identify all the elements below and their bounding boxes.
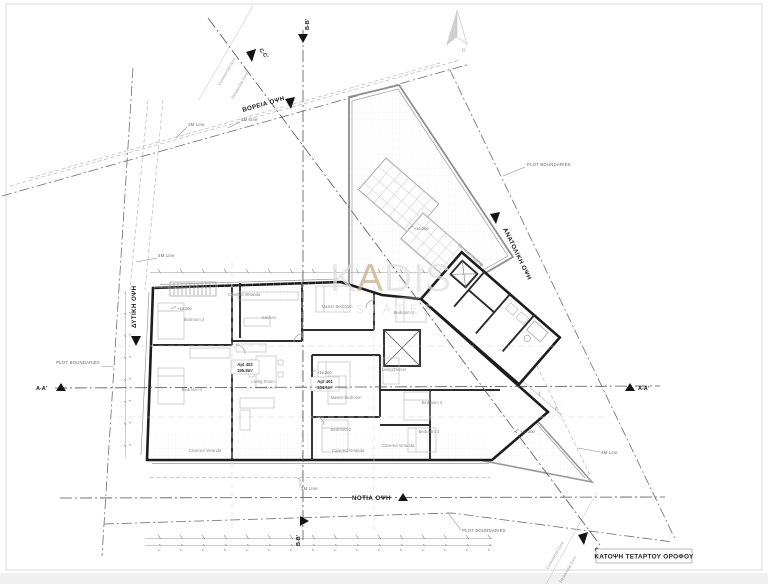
plot-boundaries-label-bottom: PLOT BOUNDARIES <box>462 528 506 533</box>
watermark-logo: KADIS ESTATES <box>330 257 452 316</box>
compass-letter: B <box>462 48 466 54</box>
apartment-401-name: Apt 401 <box>317 379 333 384</box>
sheet-bottom-edge <box>0 573 768 584</box>
room-label-bedroom3-b: Bedroom 3 <box>419 429 440 434</box>
section-label-bb-bottom: B-B' <box>296 534 302 546</box>
dimension-strip-bottom-2 <box>145 544 492 551</box>
room-label-living-room: Living Room <box>251 379 275 384</box>
watermark-brand: KADIS <box>330 257 452 300</box>
section-label-aa-right: A-A' <box>638 386 650 392</box>
room-label-bedroom4-b: Bedroom 4 <box>422 400 443 405</box>
dimension-strip-bottom-1 <box>145 535 492 542</box>
line-3m-label-top: 3M Line <box>188 122 205 127</box>
room-label-covered-veranda-top: Covered Veranda <box>228 292 261 297</box>
room-label-covered-veranda-br: Covered Veranda <box>382 443 415 448</box>
line-3m-label-south: 3M Line <box>301 486 318 491</box>
apartment-402-name: Apt 402 <box>237 362 253 367</box>
section-label-bb-top: B-B' <box>305 18 311 30</box>
elevation-label-south: ΝΟΤΙΑ ΟΨΗ <box>352 495 391 502</box>
dimension-strip-left <box>124 292 131 458</box>
level-marker-1: +15.200 <box>177 306 192 311</box>
drawing-title: ΚΑΤΟΨΗ ΤΕΤΑΡΤΟΥ ΟΡΟΦΟΥ <box>594 554 694 561</box>
room-label-kitchen: Kitchen <box>262 315 277 320</box>
elevation-label-west: ΔΥΤΙΚΗ ΟΨΗ <box>131 285 138 328</box>
section-label-aa-left: A-A' <box>36 386 48 392</box>
level-marker-terrace: +15.200 <box>414 226 429 231</box>
veranda-bottom <box>150 432 488 458</box>
title-block: ΚΑΤΟΨΗ ΤΕΤΑΡΤΟΥ ΟΡΟΦΟΥ <box>594 549 694 563</box>
plot-boundaries-label-left: PLOT BOUNDARIES <box>56 360 100 365</box>
line-4m-label-west: 4M Line <box>158 253 175 258</box>
room-label-bedroom3-a: Bedroom 3 <box>184 317 205 322</box>
room-label-covered-veranda-bc: Covered Veranda <box>332 448 365 453</box>
level-marker-2: +15.200 <box>317 370 332 375</box>
room-label-master-bedroom-2: Master Bedroom <box>331 395 362 400</box>
room-label-bedroom2-b: Bedroom 2 <box>331 427 352 432</box>
level-marker-4: +15.200 <box>520 429 535 434</box>
apartment-402-area: 195.8m² <box>237 368 254 373</box>
room-label-covered-veranda-bl: Covered Veranda <box>189 448 222 453</box>
line-4m-label-east: 4M Line <box>601 450 618 455</box>
room-label-living-dinner: Living/Dinner <box>382 367 407 372</box>
plot-boundaries-label-right: PLOT BOUNDARIES <box>527 162 571 167</box>
line-4m-label-top: 4M Line <box>241 117 258 122</box>
watermark-subtitle: ESTATES <box>342 304 438 316</box>
floor-plan-sheet: Commercial Zone Residential Zone Commerc… <box>0 0 768 584</box>
